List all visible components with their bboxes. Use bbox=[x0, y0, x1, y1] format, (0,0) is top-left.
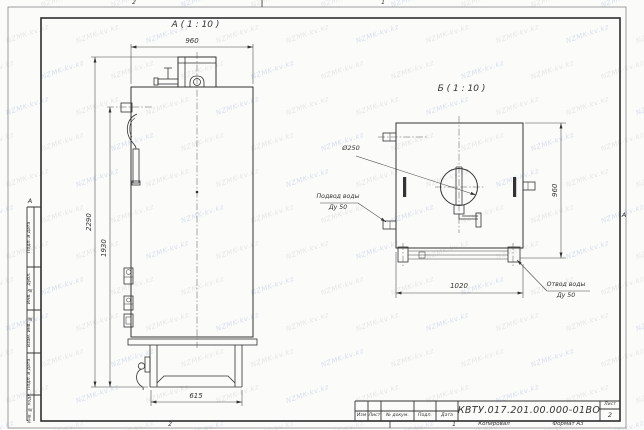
view-a-dimensions bbox=[91, 44, 253, 406]
sidebar-field-vzam-inv: Взам. инв. № bbox=[27, 310, 34, 353]
titleblock-col-podp: Подп. bbox=[414, 412, 436, 420]
side-stub bbox=[121, 103, 132, 112]
sidebar-field-podp-data-1: Подп. и дата bbox=[27, 207, 34, 267]
sidebar-field-podp-data-2: Подп. и дата bbox=[27, 353, 34, 395]
zone-letter-right: А bbox=[618, 211, 630, 220]
boiler-rear-box bbox=[396, 123, 523, 248]
titleblock-col-data: Дата bbox=[436, 412, 458, 420]
flue-pipe-stub bbox=[158, 79, 178, 84]
document-designation: КВТУ.017.201.00.000-01ВО bbox=[458, 401, 600, 421]
door-lever bbox=[127, 114, 137, 149]
footer-copied: Копировал bbox=[468, 421, 520, 429]
titleblock-col-list: Лист bbox=[368, 412, 381, 420]
zone-top-left: 2 bbox=[122, 0, 146, 7]
callout-outlet-line1: Отвод воды bbox=[542, 281, 590, 290]
zone-bottom-left: 2 bbox=[158, 421, 182, 429]
sidebar-field-inv-podl: Инв. № подл. bbox=[27, 395, 34, 421]
callout-outlet-line2: Ду 50 bbox=[546, 292, 586, 301]
inlet-pipe-stub bbox=[383, 221, 396, 229]
callout-inlet-line1: Подвод воды bbox=[314, 193, 362, 202]
titleblock-col-izm: Изм bbox=[355, 412, 368, 420]
right-pipe-stub bbox=[523, 182, 535, 190]
footer-format: Формат А3 bbox=[542, 421, 594, 429]
dim-960-right: 960 bbox=[550, 168, 561, 213]
dim-1930: 1930 bbox=[99, 226, 110, 271]
zone-bottom-right: 1 bbox=[444, 421, 464, 429]
sheet-frame bbox=[8, 0, 626, 428]
view-b-label: Б ( 1 : 10 ) bbox=[424, 83, 499, 95]
boiler-body bbox=[131, 87, 253, 337]
dim-2290: 2290 bbox=[84, 200, 95, 245]
grate-assembly bbox=[398, 247, 520, 262]
sheet-number: 2 bbox=[600, 409, 620, 421]
titleblock-col-docnum: № докум. bbox=[381, 412, 414, 420]
sheet-label: Лист bbox=[600, 401, 620, 409]
base-latch bbox=[137, 357, 150, 390]
callout-flue-diameter: Ø250 bbox=[336, 144, 366, 153]
view-a bbox=[91, 44, 257, 406]
drawing-linework bbox=[0, 0, 644, 430]
drawing-sheet: NZMK-kv.kzNZMK-kv.kzNZMK-kv.kzNZMK-kv.kz… bbox=[0, 0, 644, 430]
right-bracket bbox=[513, 177, 516, 197]
dim-615: 615 bbox=[176, 392, 216, 401]
view-a-label: А ( 1 : 10 ) bbox=[158, 19, 233, 31]
sidebar-field-inv-dubl: Инв. № дубл. bbox=[27, 267, 34, 310]
view-b-dimensions bbox=[396, 123, 566, 298]
door-hinges bbox=[124, 268, 133, 327]
crank-handle bbox=[459, 214, 478, 219]
flue-opening bbox=[441, 169, 478, 206]
zone-top-right: 1 bbox=[371, 0, 395, 7]
dim-960-top: 960 bbox=[172, 37, 212, 46]
left-bracket bbox=[403, 177, 406, 197]
zone-letter-left: А bbox=[24, 197, 36, 206]
callout-inlet-line2: Ду 50 bbox=[320, 204, 356, 213]
bottom-flange bbox=[128, 339, 257, 345]
dim-1020: 1020 bbox=[439, 282, 479, 291]
base-assembly bbox=[150, 345, 242, 387]
